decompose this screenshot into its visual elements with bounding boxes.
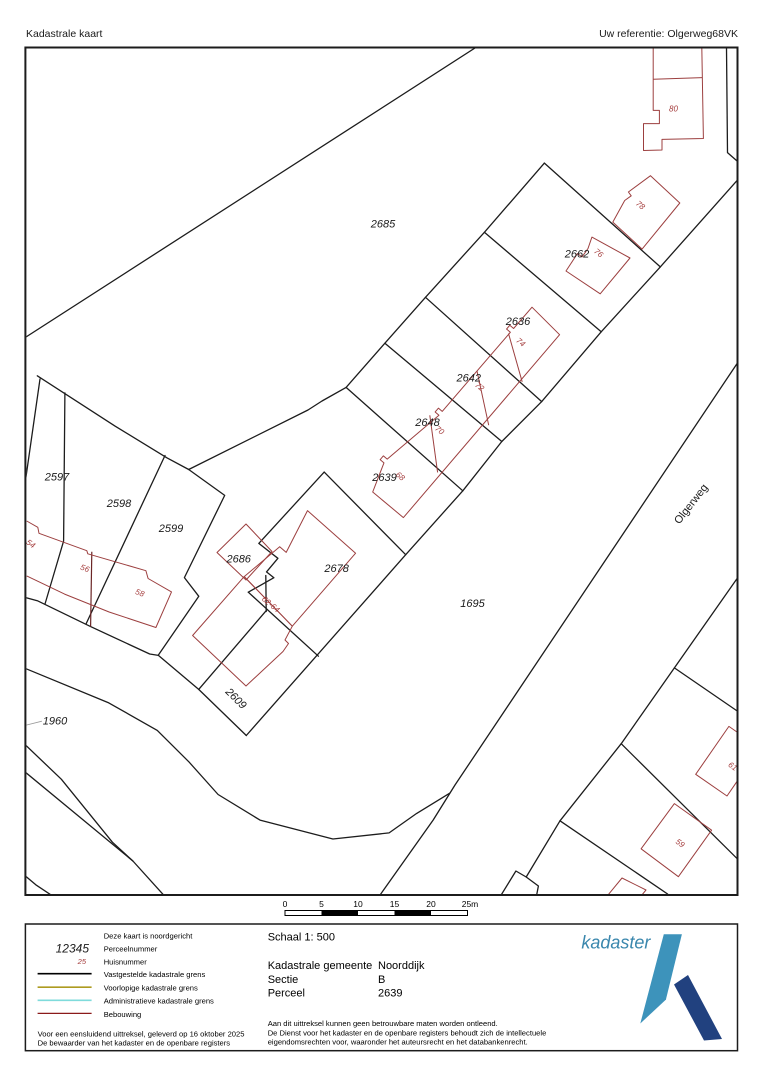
- svg-text:kadaster: kadaster: [581, 933, 651, 953]
- svg-text:Deze kaart is noordgericht: Deze kaart is noordgericht: [104, 932, 194, 941]
- svg-text:25: 25: [77, 957, 87, 966]
- svg-text:Administratieve kadastrale gre: Administratieve kadastrale grens: [104, 997, 214, 1006]
- svg-text:Kadastrale kaart: Kadastrale kaart: [26, 28, 103, 40]
- svg-text:59: 59: [674, 837, 687, 850]
- svg-text:Uw referentie: Olgerweg68VK: Uw referentie: Olgerweg68VK: [599, 28, 738, 40]
- svg-text:Sectie: Sectie: [268, 974, 299, 986]
- svg-text:58: 58: [134, 587, 146, 599]
- svg-text:Schaal 1: 500: Schaal 1: 500: [268, 932, 335, 944]
- svg-text:80: 80: [669, 105, 678, 114]
- svg-text:Voor een eensluidend uittrekse: Voor een eensluidend uittreksel, gelever…: [38, 1030, 245, 1039]
- svg-text:De bewaarder van het kadaster: De bewaarder van het kadaster en de open…: [38, 1038, 231, 1047]
- svg-text:Noorddijk: Noorddijk: [378, 960, 425, 972]
- svg-text:2599: 2599: [158, 523, 183, 535]
- svg-text:1960: 1960: [43, 716, 68, 728]
- svg-text:Aan dit uittreksel kunnen geen: Aan dit uittreksel kunnen geen betrouwba…: [268, 1019, 498, 1028]
- svg-text:20: 20: [426, 899, 436, 909]
- svg-text:5: 5: [319, 899, 324, 909]
- svg-text:2678: 2678: [323, 563, 349, 575]
- svg-text:Perceel: Perceel: [268, 988, 305, 1000]
- svg-text:Huisnummer: Huisnummer: [104, 958, 148, 967]
- svg-text:2639: 2639: [371, 472, 396, 484]
- svg-text:Kadastrale gemeente: Kadastrale gemeente: [268, 960, 373, 972]
- svg-text:2636: 2636: [505, 316, 531, 328]
- svg-text:2685: 2685: [370, 219, 396, 231]
- svg-text:Voorlopige kadastrale grens: Voorlopige kadastrale grens: [104, 984, 198, 993]
- svg-text:56: 56: [79, 563, 91, 575]
- svg-text:12345: 12345: [56, 942, 90, 956]
- svg-text:2609: 2609: [222, 685, 249, 712]
- svg-text:2648: 2648: [414, 417, 440, 429]
- svg-text:2642: 2642: [456, 373, 481, 385]
- svg-text:54: 54: [24, 538, 37, 551]
- svg-text:74: 74: [514, 336, 527, 349]
- svg-text:15: 15: [390, 899, 400, 909]
- svg-text:2597: 2597: [44, 472, 70, 484]
- svg-text:Perceelnummer: Perceelnummer: [104, 945, 158, 954]
- svg-text:25m: 25m: [462, 899, 479, 909]
- svg-text:78: 78: [634, 199, 647, 212]
- svg-text:eigendomsrechten voor, waarond: eigendomsrechten voor, waaronder het aut…: [268, 1038, 528, 1047]
- svg-text:2662: 2662: [564, 249, 589, 261]
- svg-text:1695: 1695: [460, 598, 485, 610]
- svg-text:Olgerweg: Olgerweg: [672, 482, 710, 526]
- svg-text:2598: 2598: [106, 498, 132, 510]
- svg-text:10: 10: [353, 899, 363, 909]
- svg-text:76: 76: [592, 247, 605, 260]
- svg-text:Bebouwing: Bebouwing: [104, 1010, 142, 1019]
- svg-text:0: 0: [283, 899, 288, 909]
- svg-text:B: B: [378, 974, 385, 986]
- svg-text:De Dienst voor het kadaster en: De Dienst voor het kadaster en de openba…: [268, 1029, 547, 1038]
- svg-text:2686: 2686: [225, 554, 251, 566]
- svg-text:Vastgestelde kadastrale grens: Vastgestelde kadastrale grens: [104, 970, 206, 979]
- svg-text:2639: 2639: [378, 988, 402, 1000]
